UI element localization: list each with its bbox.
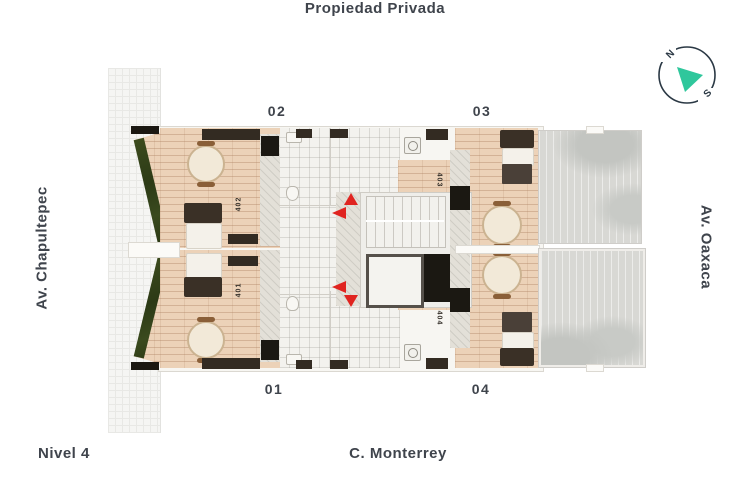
stove-401 [261,340,279,360]
bed-402-headboard [184,203,222,223]
bed-401-mattress [186,253,222,279]
closet-404 [426,358,448,369]
bath-wall-bottom [330,291,331,368]
cabinet-bottom-b [330,360,348,369]
stove-403 [450,186,470,210]
toilet-402 [286,186,299,201]
table-403 [482,205,522,245]
bed-404-blanket [502,312,532,332]
apt-number-401-text: 401 [236,283,243,298]
cabinet-top-a [296,129,312,138]
stove-404 [450,288,470,312]
table-404 [482,255,522,295]
table-402 [187,145,225,183]
stairs [366,196,446,248]
wardrobe-401 [202,358,260,369]
washer-404 [404,344,421,361]
left-street-text: Av. Chapultepec [34,186,51,309]
floorplan-page: Propiedad Privada Av. Chapultepec Av. Oa… [0,0,750,500]
wall-tick-topleft [131,126,159,134]
cabinet-top-b [330,129,348,138]
apt-number-403-text: 403 [436,173,443,188]
party-wall-left [128,242,180,258]
bed-402-mattress [186,223,222,249]
toilet-401 [286,296,299,311]
compass: N S [650,38,724,112]
right-street-text: Av. Oaxaca [698,205,715,289]
level-label: Nivel 4 [38,445,90,462]
terrace-404 [539,249,645,367]
apt-number-402-text: 402 [236,197,243,212]
terrace-nib-bottom [586,364,604,372]
wall-tick-bottomleft [131,362,159,370]
unit-label-04: 04 [472,381,491,397]
apt-number-404-text: 404 [436,311,443,326]
bath-wall-top [330,128,331,205]
bottom-street-label: C. Monterrey [349,445,447,462]
unit-label-02: 02 [268,103,287,119]
bed-403-blanket [502,164,532,184]
terrace-403 [539,131,641,243]
closet-403 [426,129,448,140]
shaft [424,254,450,302]
unit-label-01: 01 [265,381,284,397]
terrace-nib-top [586,126,604,134]
wardrobe-402 [202,129,260,140]
shelf-401 [228,256,258,266]
cabinet-bottom-a [296,360,312,369]
table-401 [187,321,225,359]
bed-401-headboard [184,277,222,297]
unit-label-03: 03 [473,103,492,119]
elevator [366,254,424,308]
party-wall-right [455,245,540,254]
top-street-label: Propiedad Privada [0,0,750,17]
shelf-402 [228,234,258,244]
stairs-rail [366,220,444,222]
bed-403-headboard [500,130,534,148]
stove-402 [261,136,279,156]
bed-404-headboard [500,348,534,366]
washer-403 [404,137,421,154]
